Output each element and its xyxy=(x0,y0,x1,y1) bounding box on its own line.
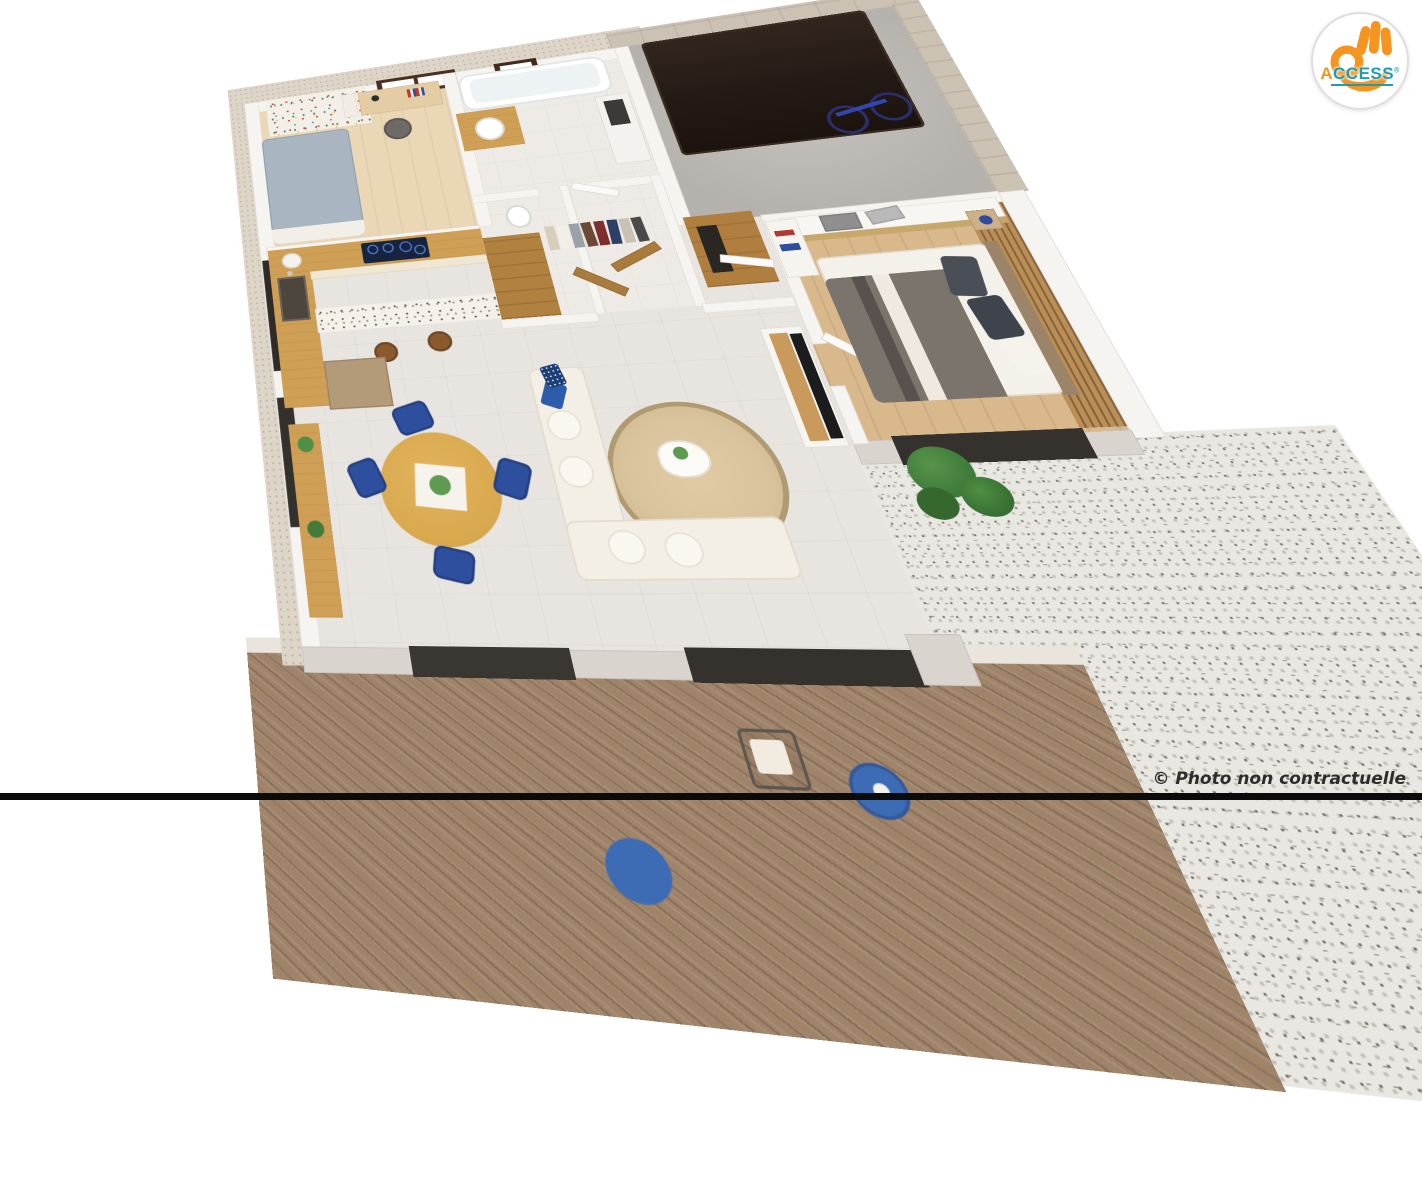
living-sliding-door xyxy=(684,647,930,687)
dining-sliding-door xyxy=(409,646,577,680)
logo-letter-accent: A xyxy=(1320,64,1333,83)
logo-underline xyxy=(1331,84,1393,86)
access-logo-text: ACCESS® xyxy=(1311,64,1409,84)
copyright-watermark: © Photo non contractuelle xyxy=(1152,769,1406,789)
kitchen-sink xyxy=(277,276,311,322)
house-plan-3d xyxy=(250,3,1422,1148)
floor-plan-render-page: { "scene": { "type": "3D isometric dollh… xyxy=(0,0,1422,800)
registered-mark: ® xyxy=(1394,67,1400,74)
bottom-black-bar xyxy=(0,793,1422,800)
access-logo: ACCESS® xyxy=(1311,12,1409,110)
logo-letters-rest: CCESS xyxy=(1333,64,1394,83)
doormat xyxy=(323,357,393,410)
